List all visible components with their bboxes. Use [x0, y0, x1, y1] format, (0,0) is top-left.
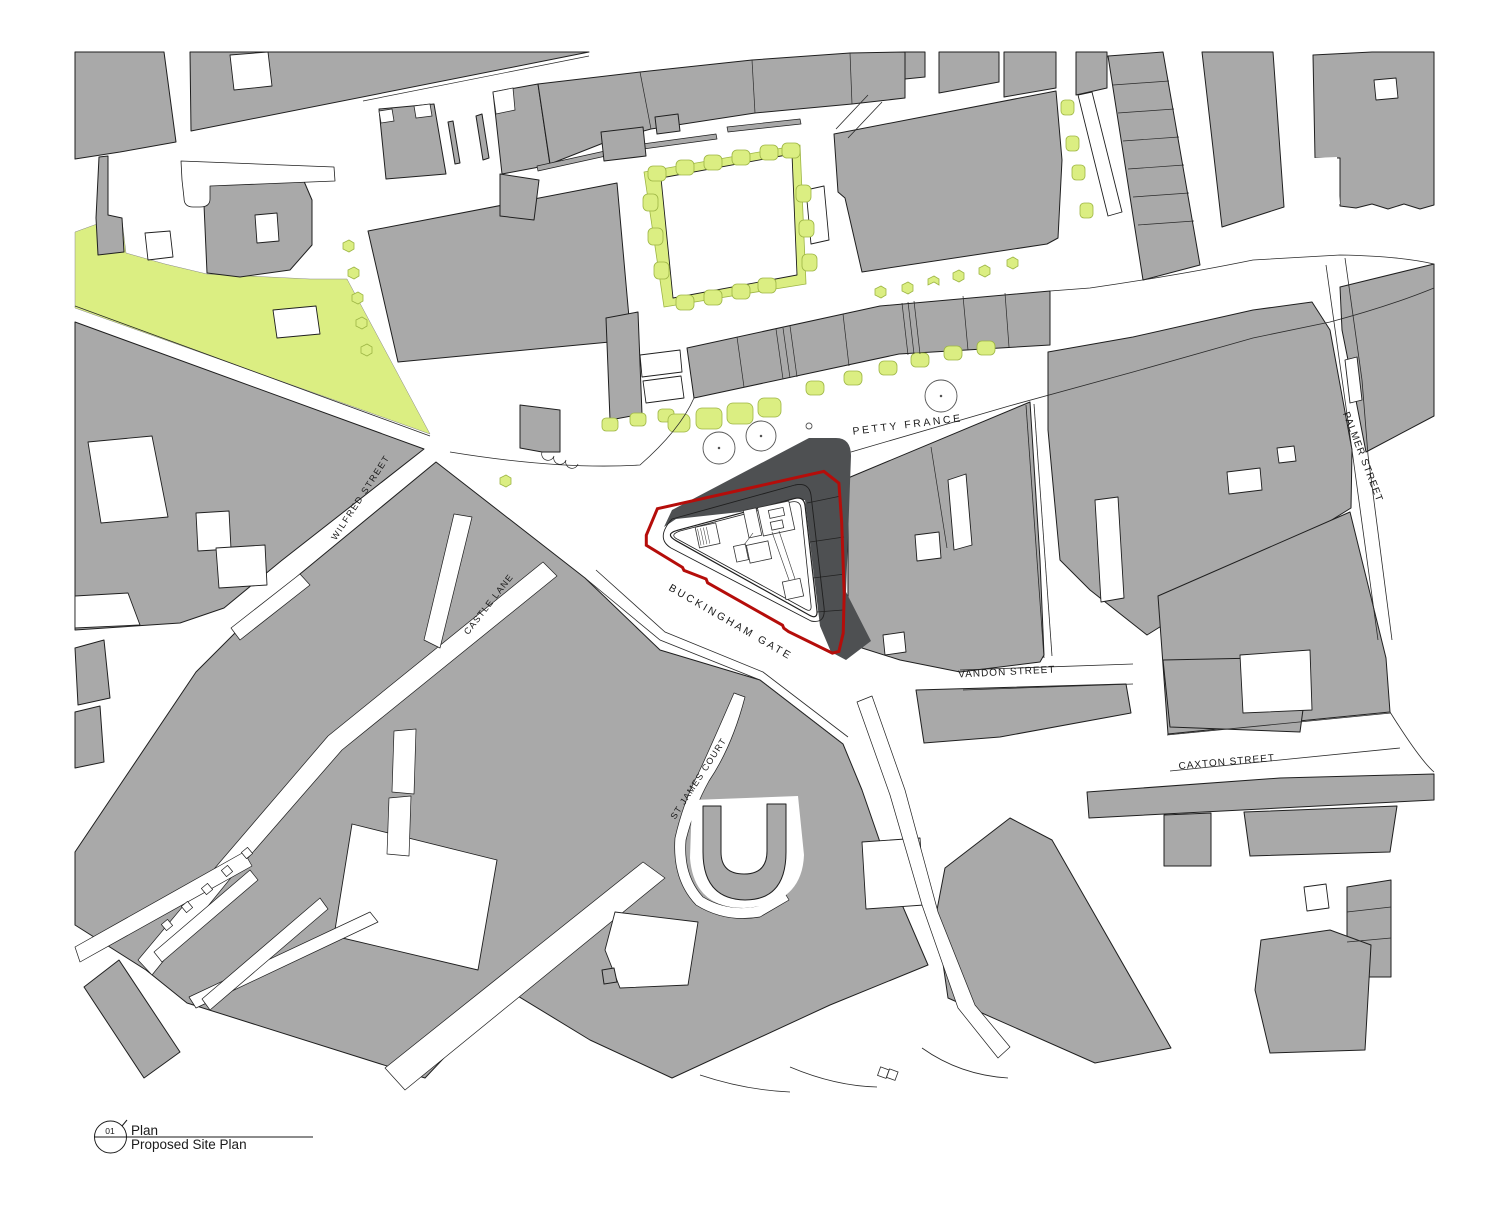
svg-text:01: 01 [105, 1126, 115, 1136]
svg-text:Proposed Site Plan: Proposed Site Plan [131, 1137, 247, 1152]
svg-text:Plan: Plan [131, 1123, 158, 1138]
